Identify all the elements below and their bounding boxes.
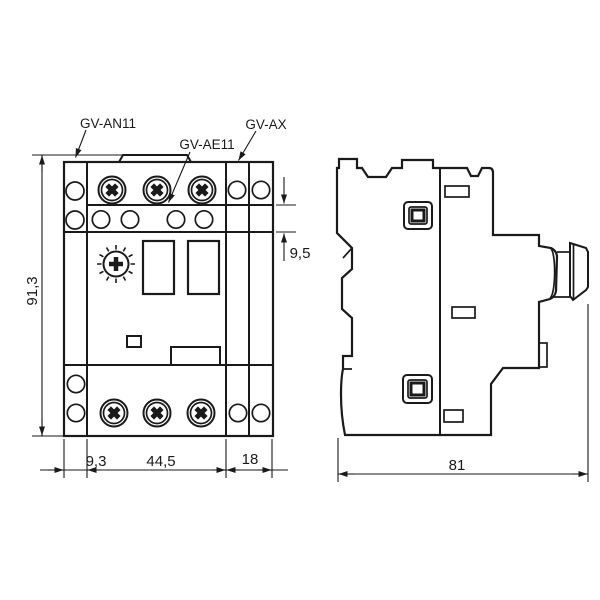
dim-text-body-width: 44,5 bbox=[146, 453, 175, 470]
side-body-outline bbox=[337, 159, 557, 435]
terminal-screw bbox=[188, 400, 215, 427]
side-recess-top bbox=[445, 186, 469, 197]
screw-cross-icon bbox=[152, 185, 162, 195]
dim-overall-depth: 81 bbox=[338, 304, 588, 482]
terminal-screw bbox=[101, 400, 128, 427]
screw-cross-icon bbox=[196, 408, 206, 418]
aux-contact-holes bbox=[92, 211, 212, 228]
module-labels: GV-AN11 GV-AE11 GV-AX bbox=[76, 116, 287, 203]
left-module-holes bbox=[66, 182, 85, 422]
drawing-canvas: 91,3 9,3 44,5 18 9,5 bbox=[0, 0, 600, 600]
leader-line-ax bbox=[239, 131, 257, 161]
dim-text-aux-height: 9,5 bbox=[290, 245, 311, 262]
front-view bbox=[64, 155, 273, 436]
side-recess-bottom bbox=[444, 410, 463, 422]
dim-overall-height: 91,3 bbox=[24, 155, 122, 436]
leader-line-an11 bbox=[76, 130, 87, 158]
din-clip-detail bbox=[343, 248, 352, 369]
knob-collar-line bbox=[550, 249, 555, 298]
dim-bottom-widths: 9,3 44,5 18 bbox=[40, 439, 288, 478]
dim-text-overall-depth: 81 bbox=[449, 457, 466, 474]
screw-cross-icon bbox=[197, 185, 207, 195]
adjustment-dial bbox=[97, 245, 135, 283]
terminal-screw bbox=[144, 400, 171, 427]
button-window-left bbox=[143, 241, 174, 294]
front-body-outline bbox=[64, 162, 273, 436]
screw-cross-icon bbox=[109, 408, 119, 418]
label-recess bbox=[171, 347, 220, 365]
button-window-right bbox=[188, 241, 219, 294]
side-view bbox=[337, 159, 588, 435]
screw-cross-icon bbox=[152, 408, 162, 418]
dim-text-left-module-width: 9,3 bbox=[86, 453, 107, 470]
side-recess-middle bbox=[452, 307, 475, 318]
terminal-screw bbox=[144, 177, 171, 204]
terminal-screw bbox=[99, 177, 126, 204]
label-gv-an11: GV-AN11 bbox=[80, 116, 136, 131]
top-screw-terminals bbox=[99, 177, 216, 204]
label-gv-ae11: GV-AE11 bbox=[179, 137, 234, 152]
bottom-screw-terminals bbox=[101, 400, 215, 427]
side-terminal-bottom bbox=[403, 375, 432, 403]
dial-plus-icon bbox=[109, 257, 123, 271]
leader-line-ae11 bbox=[169, 152, 191, 203]
side-edge-slot bbox=[539, 343, 547, 367]
technical-drawing: 91,3 9,3 44,5 18 9,5 bbox=[0, 0, 600, 600]
dim-text-side-module-width: 18 bbox=[242, 451, 259, 468]
screw-cross-icon bbox=[107, 185, 117, 195]
dim-aux-height: 9,5 bbox=[276, 177, 310, 262]
terminal-screw bbox=[189, 177, 216, 204]
small-marking-window bbox=[127, 336, 141, 347]
label-gv-ax: GV-AX bbox=[245, 117, 286, 132]
dim-text-overall-height: 91,3 bbox=[24, 276, 41, 305]
side-terminal-top bbox=[404, 202, 432, 229]
